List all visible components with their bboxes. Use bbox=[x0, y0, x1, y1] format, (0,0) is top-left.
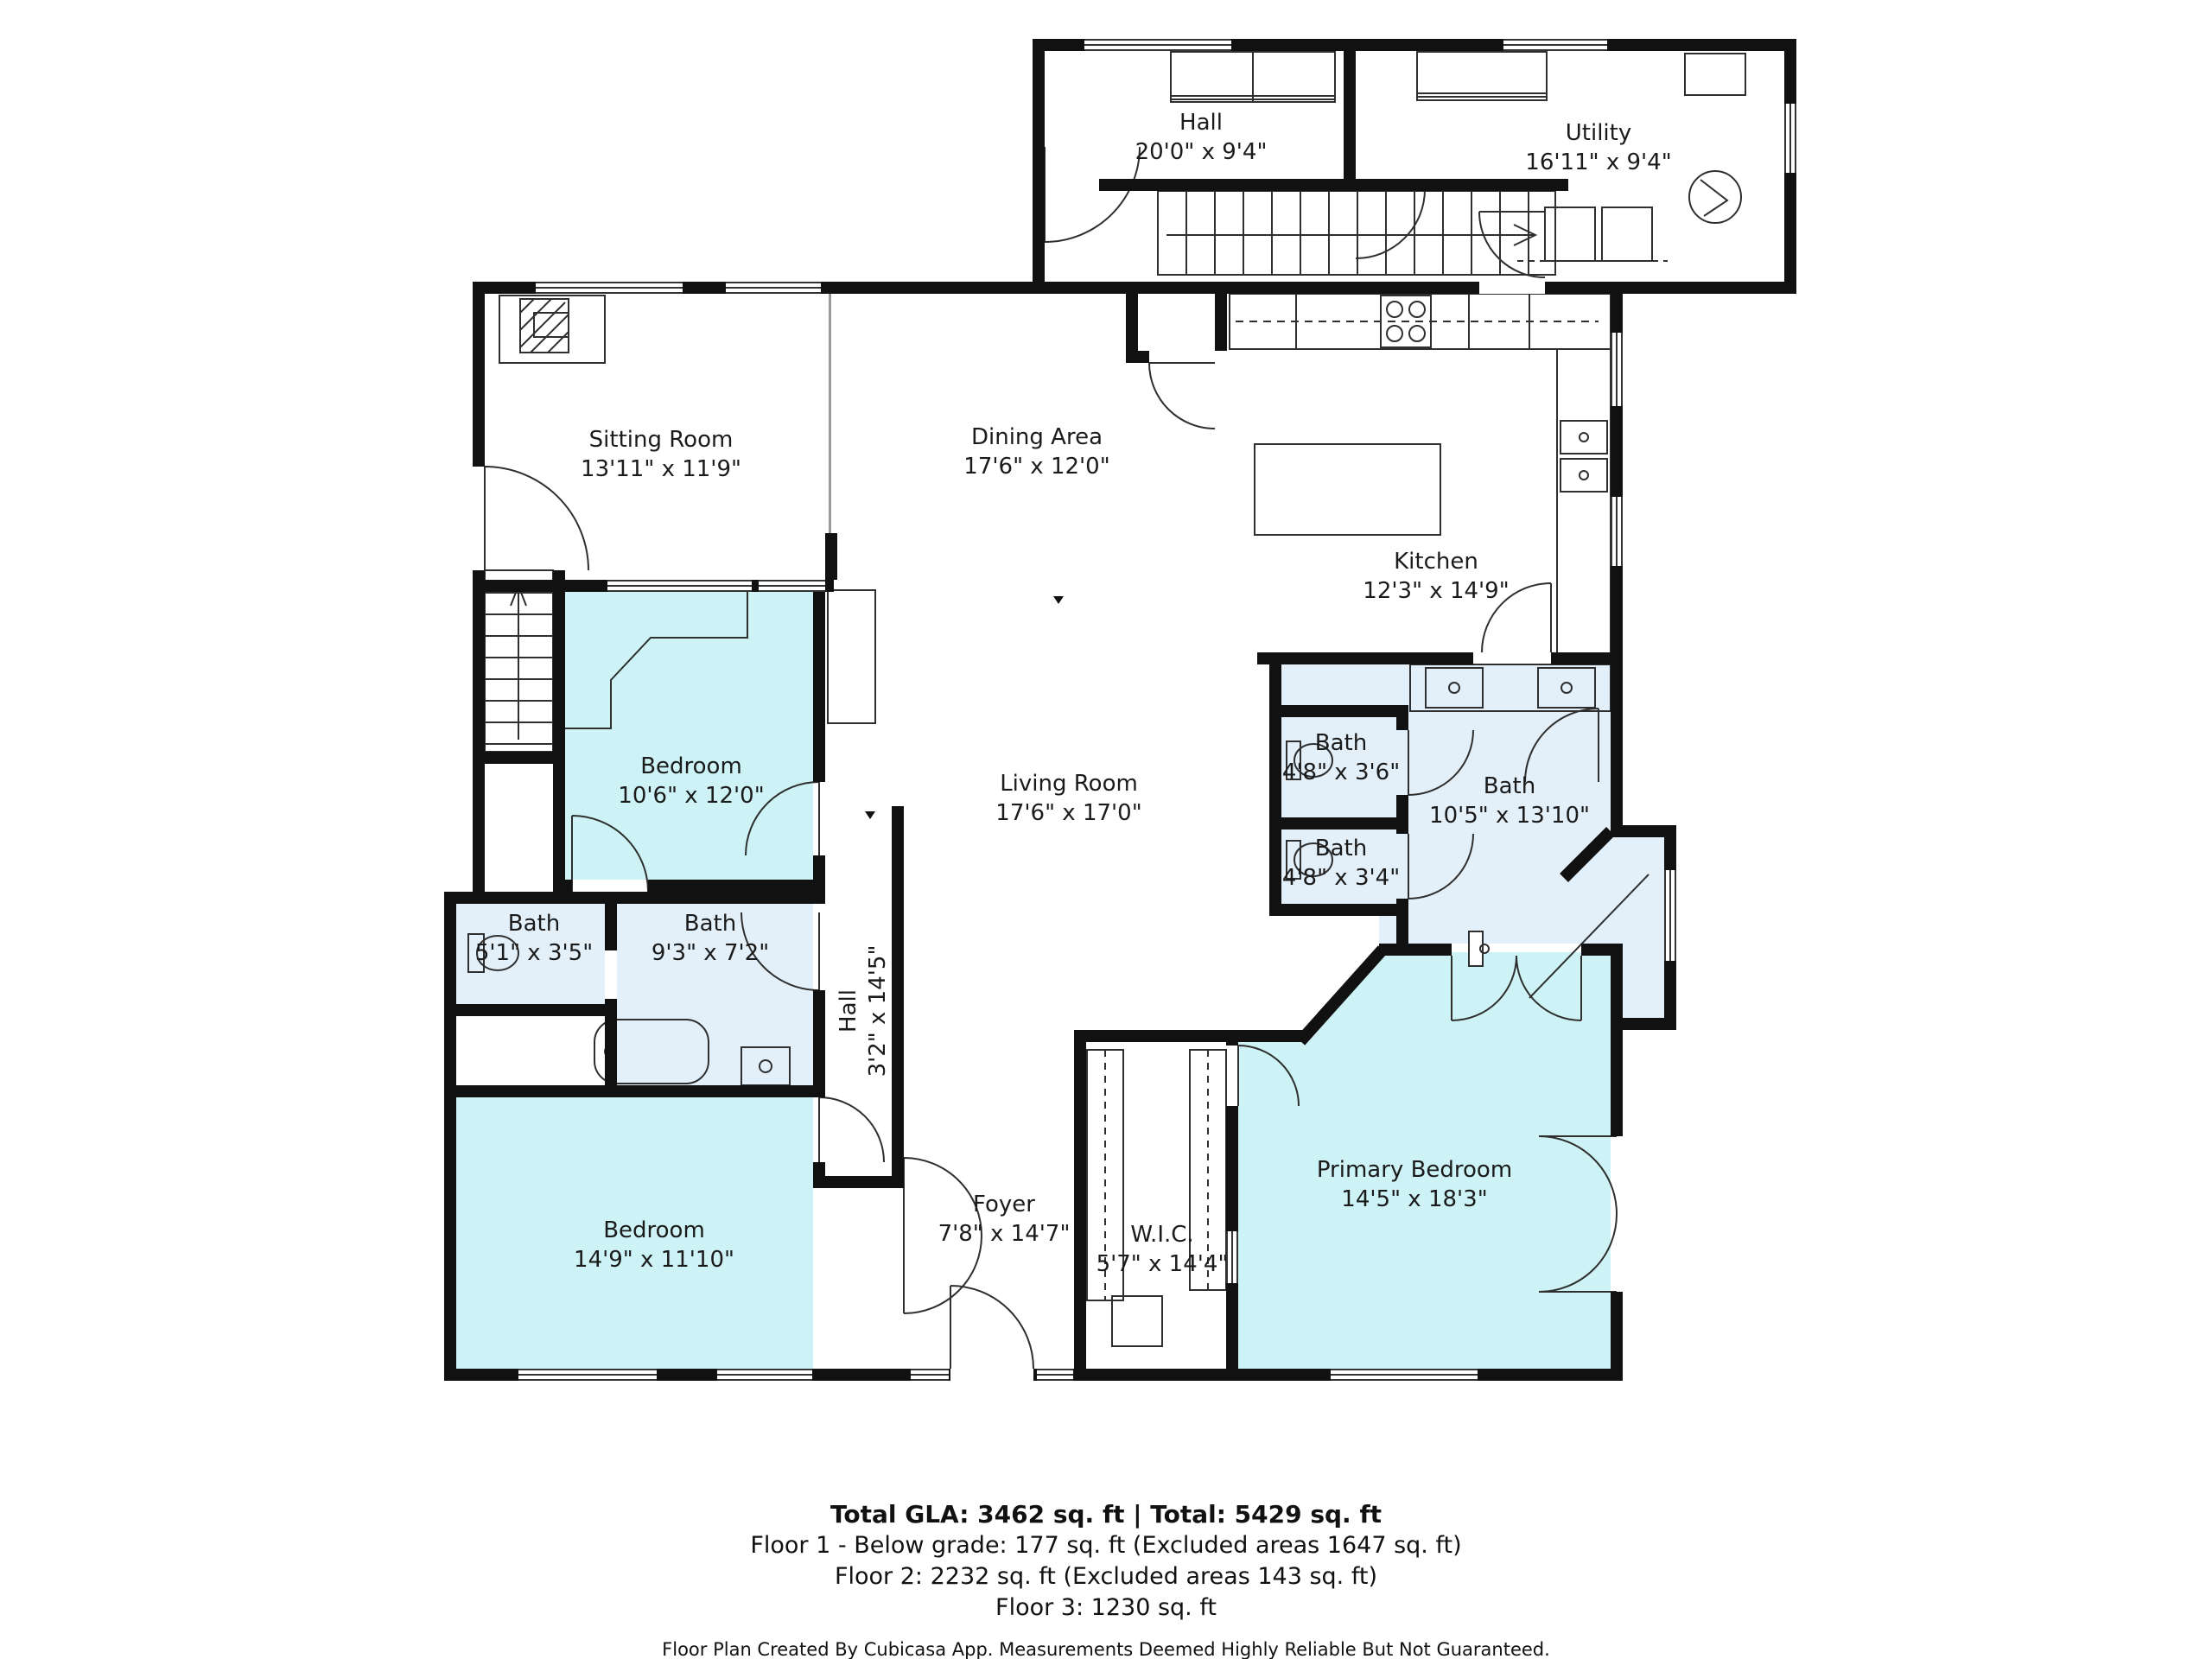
room-label-bath-ensuite: Bath 10'5" x 13'10" bbox=[1429, 772, 1590, 831]
room-name: Bedroom bbox=[618, 753, 764, 782]
room-label-bath-left-small: Bath 5'1" x 3'5" bbox=[475, 910, 593, 969]
room-dims: 7'8" x 14'7" bbox=[938, 1220, 1071, 1249]
room-name: W.I.C. bbox=[1096, 1221, 1229, 1250]
wall bbox=[1126, 351, 1149, 363]
room-label-bedroom-lower: Bedroom 14'9" x 11'10" bbox=[574, 1217, 734, 1275]
wall bbox=[1623, 282, 1796, 294]
floor2-area-line: Floor 2: 2232 sq. ft (Excluded areas 143… bbox=[0, 1561, 2212, 1592]
room-label-bath-small-lower: Bath 4'8" x 3'4" bbox=[1282, 835, 1400, 893]
wall bbox=[1611, 1018, 1676, 1030]
room-dims: 5'7" x 14'4" bbox=[1096, 1250, 1229, 1280]
window bbox=[717, 1369, 812, 1381]
room-dims: 13'11" x 11'9" bbox=[581, 455, 741, 485]
room-name: Bath bbox=[1429, 772, 1590, 802]
wall bbox=[1396, 795, 1408, 834]
floor3-area-line: Floor 3: 1230 sq. ft bbox=[0, 1592, 2212, 1624]
room-dims: 10'6" x 12'0" bbox=[618, 782, 764, 811]
room-dims: 3'2" x 14'5" bbox=[864, 945, 893, 1077]
room-name: Hall bbox=[835, 945, 864, 1077]
wall bbox=[1074, 1030, 1086, 1381]
credit-line: Floor Plan Created By Cubicasa App. Meas… bbox=[0, 1639, 2212, 1659]
wall bbox=[1581, 944, 1611, 956]
room-label-living-room: Living Room 17'6" x 17'0" bbox=[995, 770, 1141, 829]
room-dims: 17'6" x 17'0" bbox=[995, 799, 1141, 829]
room-dims: 16'11" x 9'4" bbox=[1525, 149, 1671, 178]
wall bbox=[1074, 1030, 1307, 1042]
room-label-hall-lower: Hall 3'2" x 14'5" bbox=[835, 945, 893, 1077]
wall bbox=[1215, 294, 1227, 351]
room-name: Kitchen bbox=[1363, 548, 1509, 577]
wall bbox=[648, 880, 813, 892]
room-name: Bath bbox=[475, 910, 593, 939]
room-name: Utility bbox=[1525, 119, 1671, 149]
window bbox=[759, 580, 825, 592]
room-dims: 14'5" x 18'3" bbox=[1317, 1185, 1512, 1215]
wall bbox=[473, 282, 485, 467]
plan-details-layer bbox=[0, 0, 2212, 1659]
wall bbox=[553, 570, 565, 892]
wall bbox=[1396, 717, 1408, 730]
wall bbox=[892, 806, 904, 1188]
window bbox=[1084, 39, 1231, 51]
window bbox=[1664, 870, 1676, 961]
wall bbox=[1281, 817, 1396, 829]
wall bbox=[444, 1004, 617, 1016]
wall bbox=[1379, 944, 1452, 956]
wall bbox=[553, 880, 572, 892]
window bbox=[607, 580, 752, 592]
open-divider-line bbox=[829, 294, 831, 533]
wall bbox=[1099, 179, 1568, 191]
wall bbox=[1257, 652, 1473, 664]
window bbox=[911, 1369, 949, 1381]
room-name: Bath bbox=[1282, 835, 1400, 864]
window bbox=[1784, 104, 1796, 173]
room-dims: 10'5" x 13'10" bbox=[1429, 802, 1590, 831]
room-name: Primary Bedroom bbox=[1317, 1156, 1512, 1185]
room-name: Foyer bbox=[938, 1191, 1071, 1220]
room-name: Living Room bbox=[995, 770, 1141, 799]
wall bbox=[813, 592, 825, 782]
room-dims: 17'6" x 12'0" bbox=[963, 453, 1109, 482]
room-name: Bath bbox=[1282, 729, 1400, 759]
wall bbox=[1551, 652, 1623, 664]
wall bbox=[605, 904, 617, 950]
wall bbox=[813, 1162, 825, 1188]
door-opening bbox=[1479, 282, 1545, 294]
room-label-sitting-room: Sitting Room 13'11" x 11'9" bbox=[581, 426, 741, 485]
room-label-primary-bedroom: Primary Bedroom 14'5" x 18'3" bbox=[1317, 1156, 1512, 1215]
wall bbox=[813, 990, 825, 1097]
room-name: Bedroom bbox=[574, 1217, 734, 1246]
room-dims: 14'9" x 11'10" bbox=[574, 1246, 734, 1275]
room-label-utility: Utility 16'11" x 9'4" bbox=[1525, 119, 1671, 178]
room-label-kitchen: Kitchen 12'3" x 14'9" bbox=[1363, 548, 1509, 607]
wall bbox=[1611, 944, 1623, 1136]
window bbox=[536, 282, 683, 294]
window bbox=[1503, 39, 1607, 51]
window bbox=[1331, 1369, 1478, 1381]
room-dims: 20'0" x 9'4" bbox=[1135, 138, 1268, 168]
room-dims: 12'3" x 14'9" bbox=[1363, 577, 1509, 607]
window bbox=[518, 1369, 657, 1381]
room-label-bedroom-upper: Bedroom 10'6" x 12'0" bbox=[618, 753, 764, 811]
wall bbox=[444, 892, 456, 1381]
total-area-line: Total GLA: 3462 sq. ft | Total: 5429 sq.… bbox=[0, 1499, 2212, 1530]
window bbox=[1611, 333, 1623, 406]
room-name: Bath bbox=[652, 910, 769, 939]
wall bbox=[444, 892, 825, 904]
wall bbox=[1033, 39, 1045, 294]
room-label-wic: W.I.C. 5'7" x 14'4" bbox=[1096, 1221, 1229, 1280]
room-dims: 9'3" x 7'2" bbox=[652, 939, 769, 969]
window bbox=[1037, 1369, 1073, 1381]
room-label-bath-small-upper: Bath 4'8" x 3'6" bbox=[1282, 729, 1400, 788]
door-opening bbox=[950, 1369, 1033, 1381]
room-label-dining-area: Dining Area 17'6" x 12'0" bbox=[963, 423, 1109, 482]
wall bbox=[473, 570, 485, 904]
window bbox=[726, 282, 821, 294]
room-name: Dining Area bbox=[963, 423, 1109, 453]
room-label-hall-top: Hall 20'0" x 9'4" bbox=[1135, 109, 1268, 168]
wall bbox=[1269, 652, 1281, 916]
wall bbox=[1269, 705, 1408, 717]
room-label-foyer: Foyer 7'8" x 14'7" bbox=[938, 1191, 1071, 1249]
floor-plan-canvas: Hall 20'0" x 9'4" Utility 16'11" x 9'4" … bbox=[0, 0, 2212, 1659]
wall bbox=[444, 1085, 825, 1097]
area-summary: Total GLA: 3462 sq. ft | Total: 5429 sq.… bbox=[0, 1499, 2212, 1659]
wall bbox=[1269, 904, 1408, 916]
floor1-area-line: Floor 1 - Below grade: 177 sq. ft (Exclu… bbox=[0, 1530, 2212, 1561]
wall bbox=[485, 752, 553, 764]
room-name: Sitting Room bbox=[581, 426, 741, 455]
wall bbox=[1126, 294, 1138, 351]
room-dims: 5'1" x 3'5" bbox=[475, 939, 593, 969]
wall bbox=[825, 533, 837, 580]
room-dims: 4'8" x 3'6" bbox=[1282, 759, 1400, 788]
room-label-bath-left-large: Bath 9'3" x 7'2" bbox=[652, 910, 769, 969]
wall bbox=[1344, 51, 1356, 189]
wall bbox=[1226, 1030, 1238, 1046]
room-dims: 4'8" x 3'4" bbox=[1282, 864, 1400, 893]
room-name: Hall bbox=[1135, 109, 1268, 138]
window bbox=[1611, 497, 1623, 566]
wall bbox=[1611, 1292, 1623, 1381]
